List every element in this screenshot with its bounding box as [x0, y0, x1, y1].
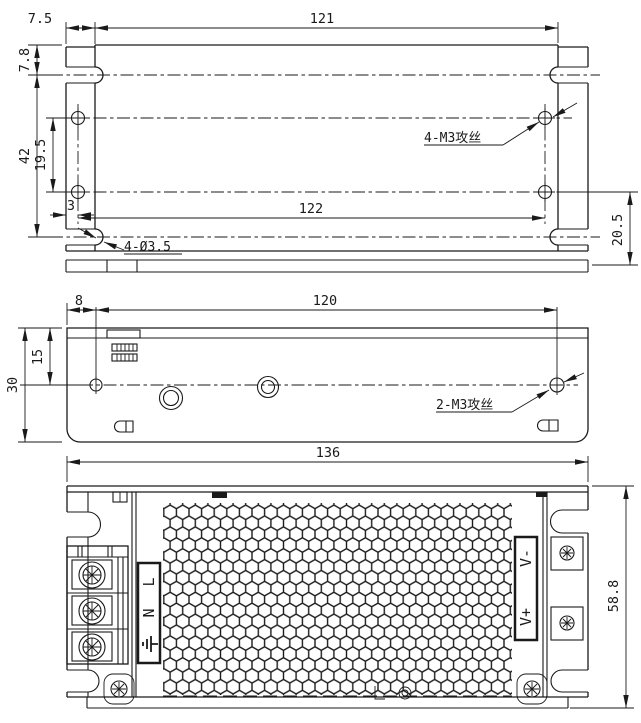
dim-7-5: 7.5	[28, 11, 52, 27]
dim-3: 3	[67, 198, 75, 214]
callout-4-m3: 4-M3攻丝	[424, 103, 577, 146]
callout-4-dia3-5-text: 4-Ø3.5	[124, 240, 171, 255]
dim-7-8: 7.8	[17, 48, 33, 72]
dim-8: 8	[75, 293, 83, 309]
dim-136: 136	[316, 445, 340, 461]
engineering-drawing-page: 7.5 121 7.8 42 19.5 3 122 20.5 4-M3攻丝 4-…	[0, 0, 641, 723]
terminal-label-live: L	[140, 577, 158, 586]
front-view: L N V- V+	[67, 445, 634, 708]
terminal-screw[interactable]	[79, 634, 105, 660]
ground-icon	[143, 636, 158, 652]
connector-detail	[112, 344, 137, 361]
terminal-screw[interactable]	[79, 562, 105, 588]
terminal-label-v-minus: V-	[517, 549, 535, 567]
top-edge-detail	[107, 330, 140, 338]
case-screw	[104, 674, 134, 704]
side-slots	[115, 420, 559, 432]
dim-120: 120	[313, 293, 337, 309]
top-view: 7.5 121 7.8 42 19.5 3 122 20.5 4-M3攻丝 4-…	[17, 11, 638, 272]
top-edge-tabs	[113, 492, 547, 502]
dim-58-8: 58.8	[606, 580, 622, 613]
rear-lip-strip	[66, 260, 588, 272]
dim-20-5: 20.5	[610, 214, 626, 247]
psu-dimension-drawing: 7.5 121 7.8 42 19.5 3 122 20.5 4-M3攻丝 4-…	[0, 0, 641, 723]
dim-42: 42	[17, 148, 33, 164]
dim-15: 15	[30, 349, 46, 365]
dim-122: 122	[299, 201, 323, 217]
mounting-holes	[68, 108, 555, 202]
callout-4-m3-text: 4-M3攻丝	[424, 131, 481, 146]
dim-19-5: 19.5	[33, 139, 49, 172]
vent-mesh	[163, 503, 512, 695]
dim-30: 30	[5, 377, 21, 393]
terminal-label-neutral: N	[140, 608, 158, 617]
callout-2-m3: 2-M3攻丝	[436, 373, 584, 413]
terminal-screw[interactable]	[79, 598, 105, 624]
terminal-label-v-plus: V+	[517, 608, 535, 626]
dc-label-strip: V- V+	[515, 537, 537, 640]
side-view: 8 120 15 30 2-M3攻丝	[5, 293, 588, 442]
dim-121: 121	[310, 11, 334, 27]
dc-terminal-block[interactable]	[551, 537, 583, 640]
ac-terminal-block[interactable]	[67, 546, 128, 664]
side-bosses	[160, 377, 279, 410]
callout-2-m3-text: 2-M3攻丝	[436, 398, 493, 413]
ac-label-strip: L N	[138, 563, 160, 663]
